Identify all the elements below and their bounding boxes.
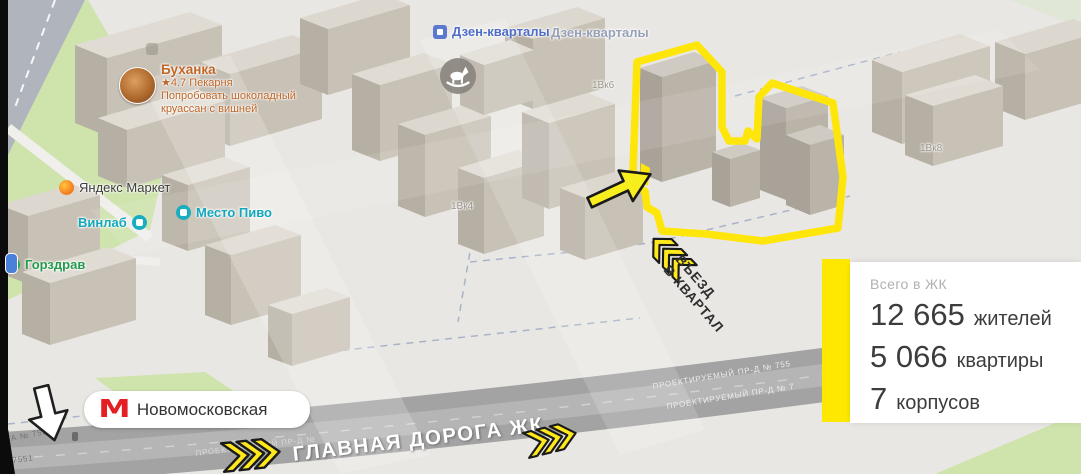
mesto-pivo-poi[interactable]: Место Пиво — [176, 205, 272, 220]
road-chevrons-left-icon — [218, 432, 295, 474]
stats-label-apartments: квартиры — [957, 350, 1044, 373]
stats-row-buildings: 7 корпусов — [870, 381, 1081, 418]
beer-place-icon — [176, 205, 191, 220]
building-label-1vk6: 1Вк6 — [592, 80, 614, 91]
dzen-kvartaly-label-1: Дзен-кварталы — [452, 24, 550, 39]
dzen-kvartaly-label-2: Дзен-кварталы — [551, 25, 649, 40]
dzen-kvartaly-poi-2[interactable]: Дзен-кварталы — [551, 25, 649, 40]
bakery-poi[interactable]: Буханка ★4.7 Пекарня Попробовать шоколад… — [119, 63, 296, 116]
building-label-1vk8: 1Вк8 — [920, 143, 942, 154]
building-label-1vk4: 1Вк4 — [451, 201, 473, 212]
stats-row-apartments: 5 066 квартиры — [870, 339, 1081, 376]
yandex-market-poi[interactable]: Яндекс Маркет — [59, 180, 170, 195]
metro-logo-icon: М — [98, 394, 130, 423]
yandex-market-label: Яндекс Маркет — [79, 180, 170, 195]
stats-title: Всего в ЖК — [870, 276, 1081, 292]
left-crop-bar — [0, 0, 8, 474]
stats-row-residents: 12 665 жителей — [870, 297, 1081, 334]
stats-label-buildings: корпусов — [896, 392, 980, 415]
small-poi-icon — [146, 43, 158, 55]
gorzdrav-label: Горздрав — [25, 257, 85, 272]
stats-value-buildings: 7 — [870, 381, 887, 417]
metro-station-name: Новомосковская — [137, 400, 268, 420]
playground-icon[interactable] — [439, 57, 477, 95]
metro-station-badge[interactable]: М Новомосковская — [84, 391, 310, 428]
vinlab-label: Винлаб — [78, 215, 127, 230]
stats-accent-bar — [822, 259, 850, 422]
map-pin[interactable] — [5, 253, 18, 274]
stats-value-residents: 12 665 — [870, 297, 965, 333]
market-icon — [59, 180, 74, 195]
dzen-kvartaly-poi-1[interactable]: Дзен-кварталы — [433, 24, 550, 39]
wine-shop-icon — [132, 215, 147, 230]
stats-value-apartments: 5 066 — [870, 339, 948, 375]
bakery-rating: ★4.7 Пекарня — [161, 77, 296, 90]
bakery-photo-icon — [119, 67, 156, 104]
mesto-pivo-label: Место Пиво — [196, 205, 272, 220]
vinlab-poi[interactable]: Винлаб — [78, 215, 147, 230]
bakery-name: Буханка — [161, 63, 296, 76]
stats-panel: Всего в ЖК 12 665 жителей 5 066 квартиры… — [850, 262, 1081, 423]
stats-label-residents: жителей — [974, 308, 1052, 331]
bakery-promo-line2: круассан с вишней — [161, 103, 296, 116]
map-screenshot: Буханка ★4.7 Пекарня Попробовать шоколад… — [0, 0, 1081, 474]
residential-complex-icon — [433, 25, 447, 39]
bakery-promo-line1: Попробовать шоколадный — [161, 90, 296, 103]
